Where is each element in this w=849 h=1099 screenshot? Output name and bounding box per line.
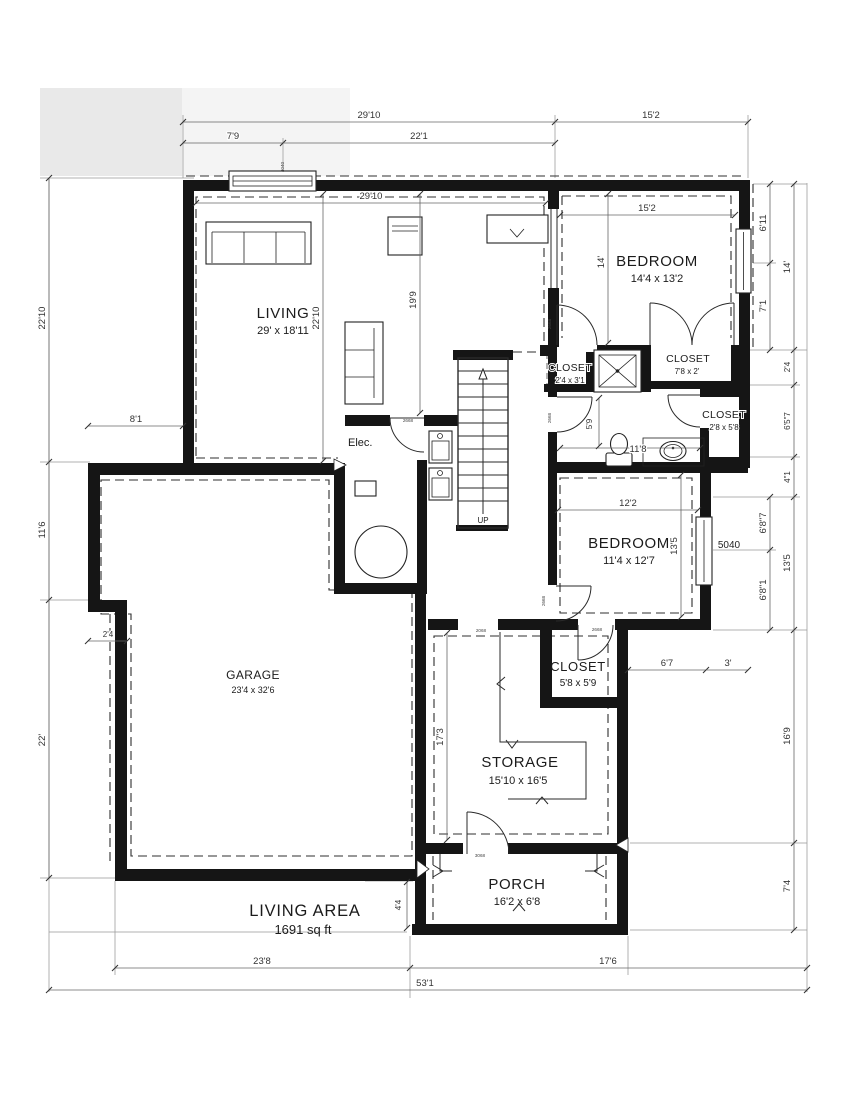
svg-text:22'1: 22'1 (410, 131, 428, 142)
svg-text:22'10: 22'10 (37, 307, 48, 330)
svg-text:3': 3' (724, 658, 731, 669)
bedroom-mid-label: BEDROOM (588, 535, 670, 552)
washer (429, 431, 452, 463)
closet-b-size: 7'8 x 2' (675, 367, 700, 376)
dim-bed2-offset-a: 6'7 (625, 658, 709, 673)
closet-d-size: 5'8 x 5'9 (560, 678, 597, 689)
tv-console (487, 215, 548, 243)
svg-text:2'4: 2'4 (783, 361, 792, 372)
scan-artifact (40, 88, 350, 176)
door-laundry-tag: 2668 (403, 418, 414, 423)
dim-bed1-width: 15'2 (557, 203, 738, 218)
dim-bottom-17-6: 17'6 (410, 956, 810, 971)
living-area-label: LIVING AREA (249, 902, 361, 920)
elec-label: Elec. (348, 437, 372, 449)
svg-text:4"1: 4"1 (783, 471, 792, 483)
dim-storage-height: 17'3 (435, 630, 450, 843)
closet-c-label: CLOSET (702, 409, 746, 421)
door-bed2-tag: 2668 (541, 595, 546, 606)
svg-text:6'8"7: 6'8"7 (758, 512, 769, 533)
dim-right-6-8-1: 6'8"1 (758, 550, 773, 633)
svg-text:15'2: 15'2 (638, 203, 656, 214)
storage-size: 15'10 x 16'5 (489, 775, 548, 787)
living-area-value: 1691 sq ft (274, 922, 331, 937)
svg-text:11'6: 11'6 (37, 522, 48, 539)
sofa-short (345, 322, 383, 404)
floor-plan-page: UP (0, 0, 849, 1099)
dim-bath-height: 5'9 (585, 395, 602, 449)
garage-size: 23'4 x 32'6 (232, 685, 275, 695)
bedroom-mid-door (556, 586, 591, 621)
bath-sink (643, 438, 704, 466)
dim-living-height: 22'10 (311, 191, 326, 464)
garage-label: GARAGE (226, 668, 280, 682)
svg-text:14': 14' (596, 256, 607, 269)
svg-text:8'1: 8'1 (130, 414, 142, 425)
elec-panel (355, 481, 376, 496)
svg-text:13'5: 13'5 (782, 554, 793, 572)
svg-text:6'7: 6'7 (661, 658, 673, 669)
door-closet-tag: 2668 (592, 627, 603, 632)
dim-bed2-width: 12'2 (555, 498, 701, 513)
svg-text:53'1: 53'1 (416, 978, 434, 989)
toilet (606, 434, 632, 467)
window-bed2-tag: 5040 (718, 540, 741, 551)
door-porch-tag: 3068 (475, 853, 486, 858)
bedroom-top-label: BEDROOM (616, 253, 698, 270)
dim-left-22: 22' (37, 600, 52, 881)
svg-text:5'9: 5'9 (585, 418, 594, 429)
svg-text:7'1: 7'1 (758, 300, 769, 312)
svg-text:19'9: 19'9 (408, 291, 419, 309)
dim-right-7-4: 7'4 (782, 843, 797, 933)
dim-bed2-height: 13'5 (669, 472, 684, 620)
svg-text:23'8: 23'8 (253, 956, 271, 967)
dim-right-6-8-7: 6'8"7 (758, 494, 773, 553)
dim-right-bath: 6'5"7 (783, 385, 797, 460)
closet-double-doors (650, 303, 734, 345)
window-living-tag: 4040 (280, 161, 285, 172)
closet-d-label: CLOSET (550, 659, 606, 674)
bedroom-top-door (557, 305, 597, 345)
porch-size: 16'2 x 6'8 (494, 896, 540, 908)
utility-fixtures (355, 431, 452, 578)
dim-garage-offset: 8'1 (85, 414, 186, 429)
svg-text:6'11: 6'11 (758, 215, 769, 232)
svg-text:29'10: 29'10 (358, 110, 381, 121)
closet-b-label: CLOSET (666, 353, 710, 365)
dim-bottom-23-8: 23'8 (112, 956, 413, 971)
bedroom-top-window (736, 229, 751, 293)
dim-bottom-53-1: 53'1 (46, 978, 810, 993)
svg-text:12'2: 12'2 (619, 498, 637, 509)
storage-label: STORAGE (481, 754, 558, 771)
closet-a-size: 2'4 x 3'1 (555, 376, 585, 385)
dim-right-2-4: 2'4 (783, 350, 797, 388)
dim-right-13-5: 13'5 (782, 497, 797, 633)
living-window (229, 171, 316, 191)
bedroom-mid-window (696, 517, 712, 585)
svg-text:22': 22' (37, 734, 48, 747)
dim-right-14: 14' (782, 181, 797, 353)
dim-top-15-2: 15'2 (555, 110, 751, 125)
svg-text:14': 14' (782, 261, 793, 274)
bedroom-top-size: 14'4 x 13'2 (631, 273, 684, 285)
porch-label: PORCH (488, 876, 545, 893)
svg-text:13'5: 13'5 (669, 537, 680, 555)
laundry-door (390, 418, 424, 452)
dim-right-16-9: 16'9 (782, 630, 797, 846)
floor-plan-drawing: UP (0, 0, 849, 1099)
dim-right-gap: 4"1 (783, 457, 797, 500)
dim-left-11-6: 11'6 (37, 462, 52, 603)
door-bath-tag: 2668 (547, 412, 552, 423)
svg-text:17'6: 17'6 (599, 956, 617, 967)
svg-text:17'3: 17'3 (435, 728, 446, 746)
closet-a-label: CLOSET (548, 362, 592, 374)
svg-text:4'4: 4'4 (394, 899, 403, 910)
living-size: 29' x 18'11 (257, 325, 309, 337)
svg-text:6'5"7: 6'5"7 (783, 412, 792, 430)
dim-living-width: 29'10 (193, 191, 549, 206)
svg-text:11'8: 11'8 (630, 444, 647, 455)
dim-bed1-height: 14' (596, 191, 611, 346)
svg-text:15'2: 15'2 (642, 110, 660, 121)
dim-left-22-10: 22'10 (37, 175, 52, 465)
svg-text:6'8"1: 6'8"1 (758, 579, 769, 600)
svg-text:7'9: 7'9 (227, 131, 239, 142)
dryer (429, 468, 452, 500)
armchair (388, 217, 422, 255)
stairs: UP (458, 358, 508, 528)
svg-text:29'10: 29'10 (360, 191, 383, 202)
dim-porch-offset: 4'4 (394, 879, 410, 931)
svg-text:16'9: 16'9 (782, 727, 793, 745)
sofa-long (206, 222, 311, 264)
bedroom-mid-size: 11'4 x 12'7 (603, 555, 655, 567)
water-heater (355, 526, 407, 578)
shower (594, 350, 641, 392)
door-bed1-tag: 2668 (547, 318, 552, 329)
door-storage-tag: 2068 (476, 628, 487, 633)
porch-door (467, 812, 509, 854)
closet-c-size: 2'8 x 5'8 (709, 423, 739, 432)
dim-right-6-11: 6'11 (758, 181, 773, 266)
closet-right-door (668, 395, 700, 427)
svg-text:22'10: 22'10 (311, 307, 322, 330)
dim-bed2-offset-b: 3' (706, 658, 751, 673)
dim-right-7-1: 7'1 (758, 263, 773, 353)
stairs-up-label: UP (477, 516, 488, 525)
svg-text:7'4: 7'4 (782, 880, 793, 892)
svg-text:2'4: 2'4 (103, 630, 114, 639)
living-label: LIVING (257, 305, 310, 322)
